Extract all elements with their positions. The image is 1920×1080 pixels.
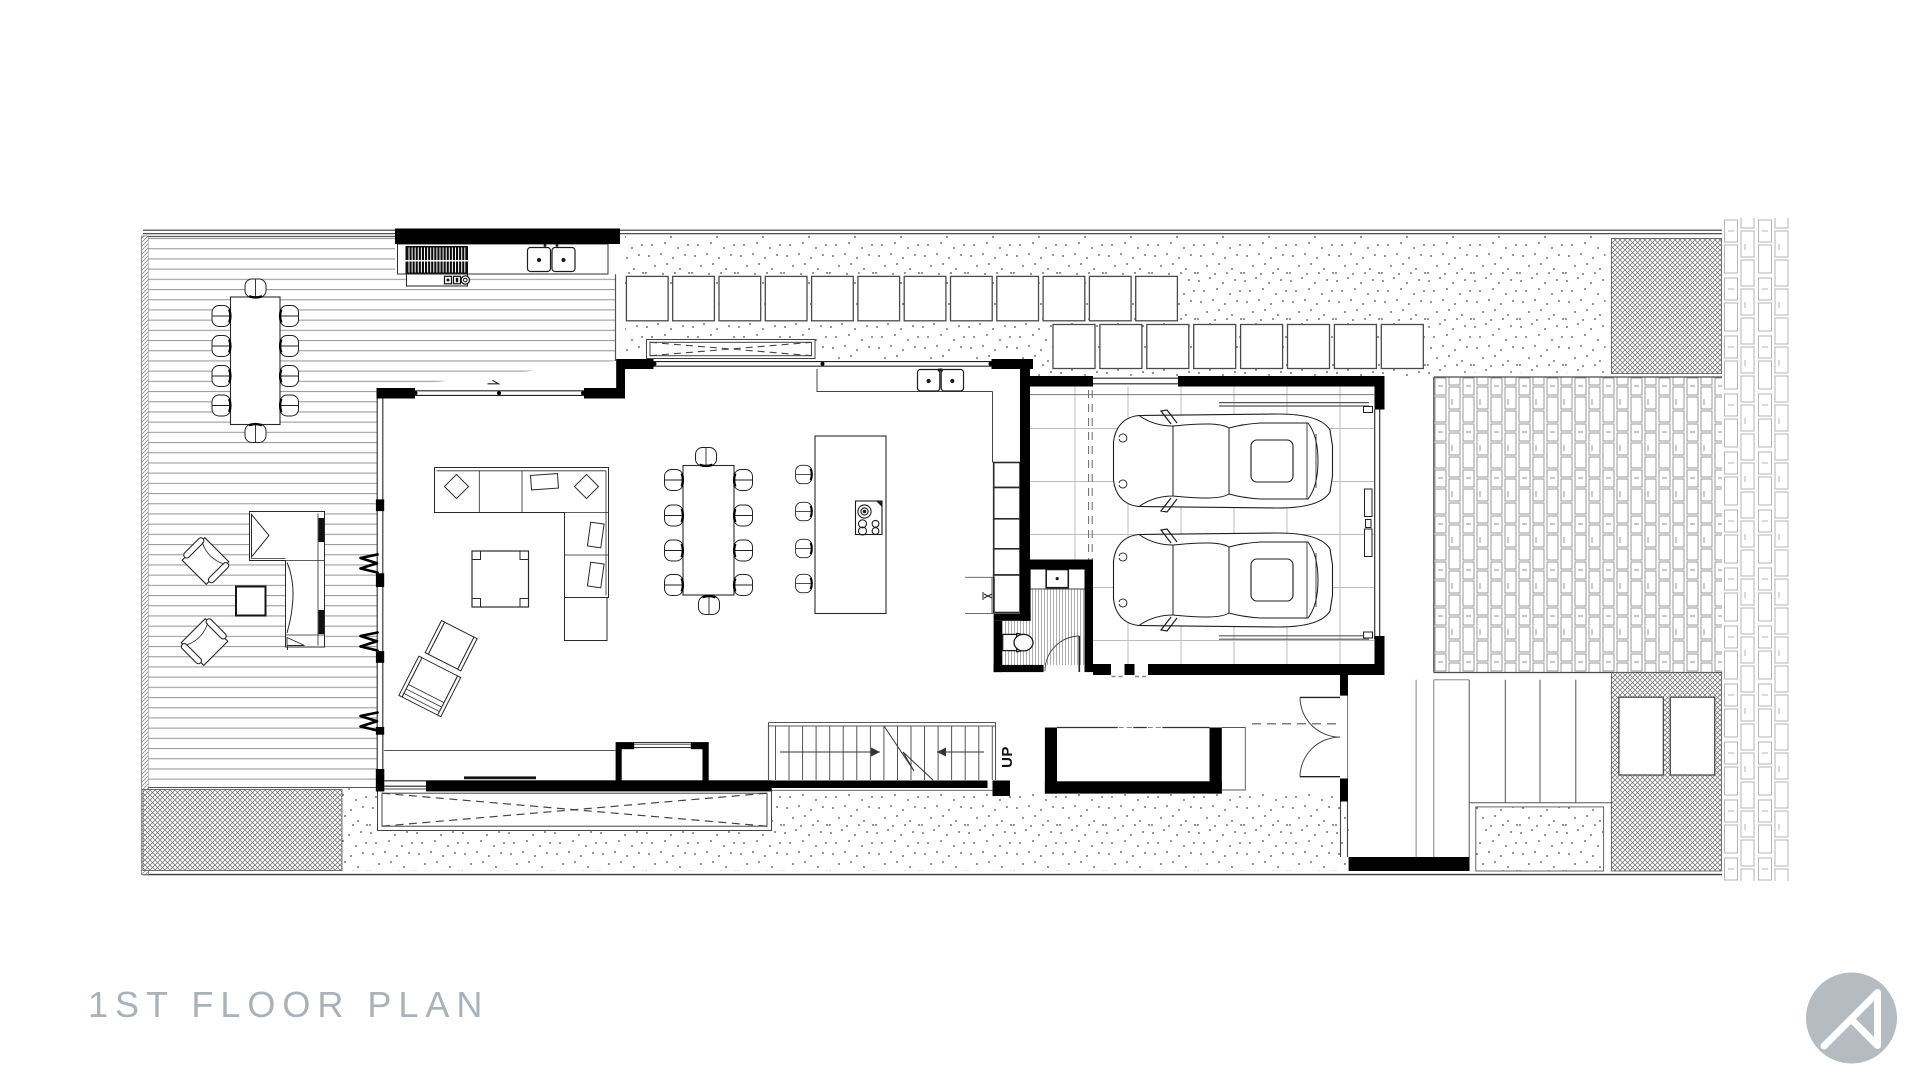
svg-text:UP: UP — [999, 746, 1016, 768]
svg-text:1ST FLOOR PLAN: 1ST FLOOR PLAN — [88, 984, 489, 1025]
